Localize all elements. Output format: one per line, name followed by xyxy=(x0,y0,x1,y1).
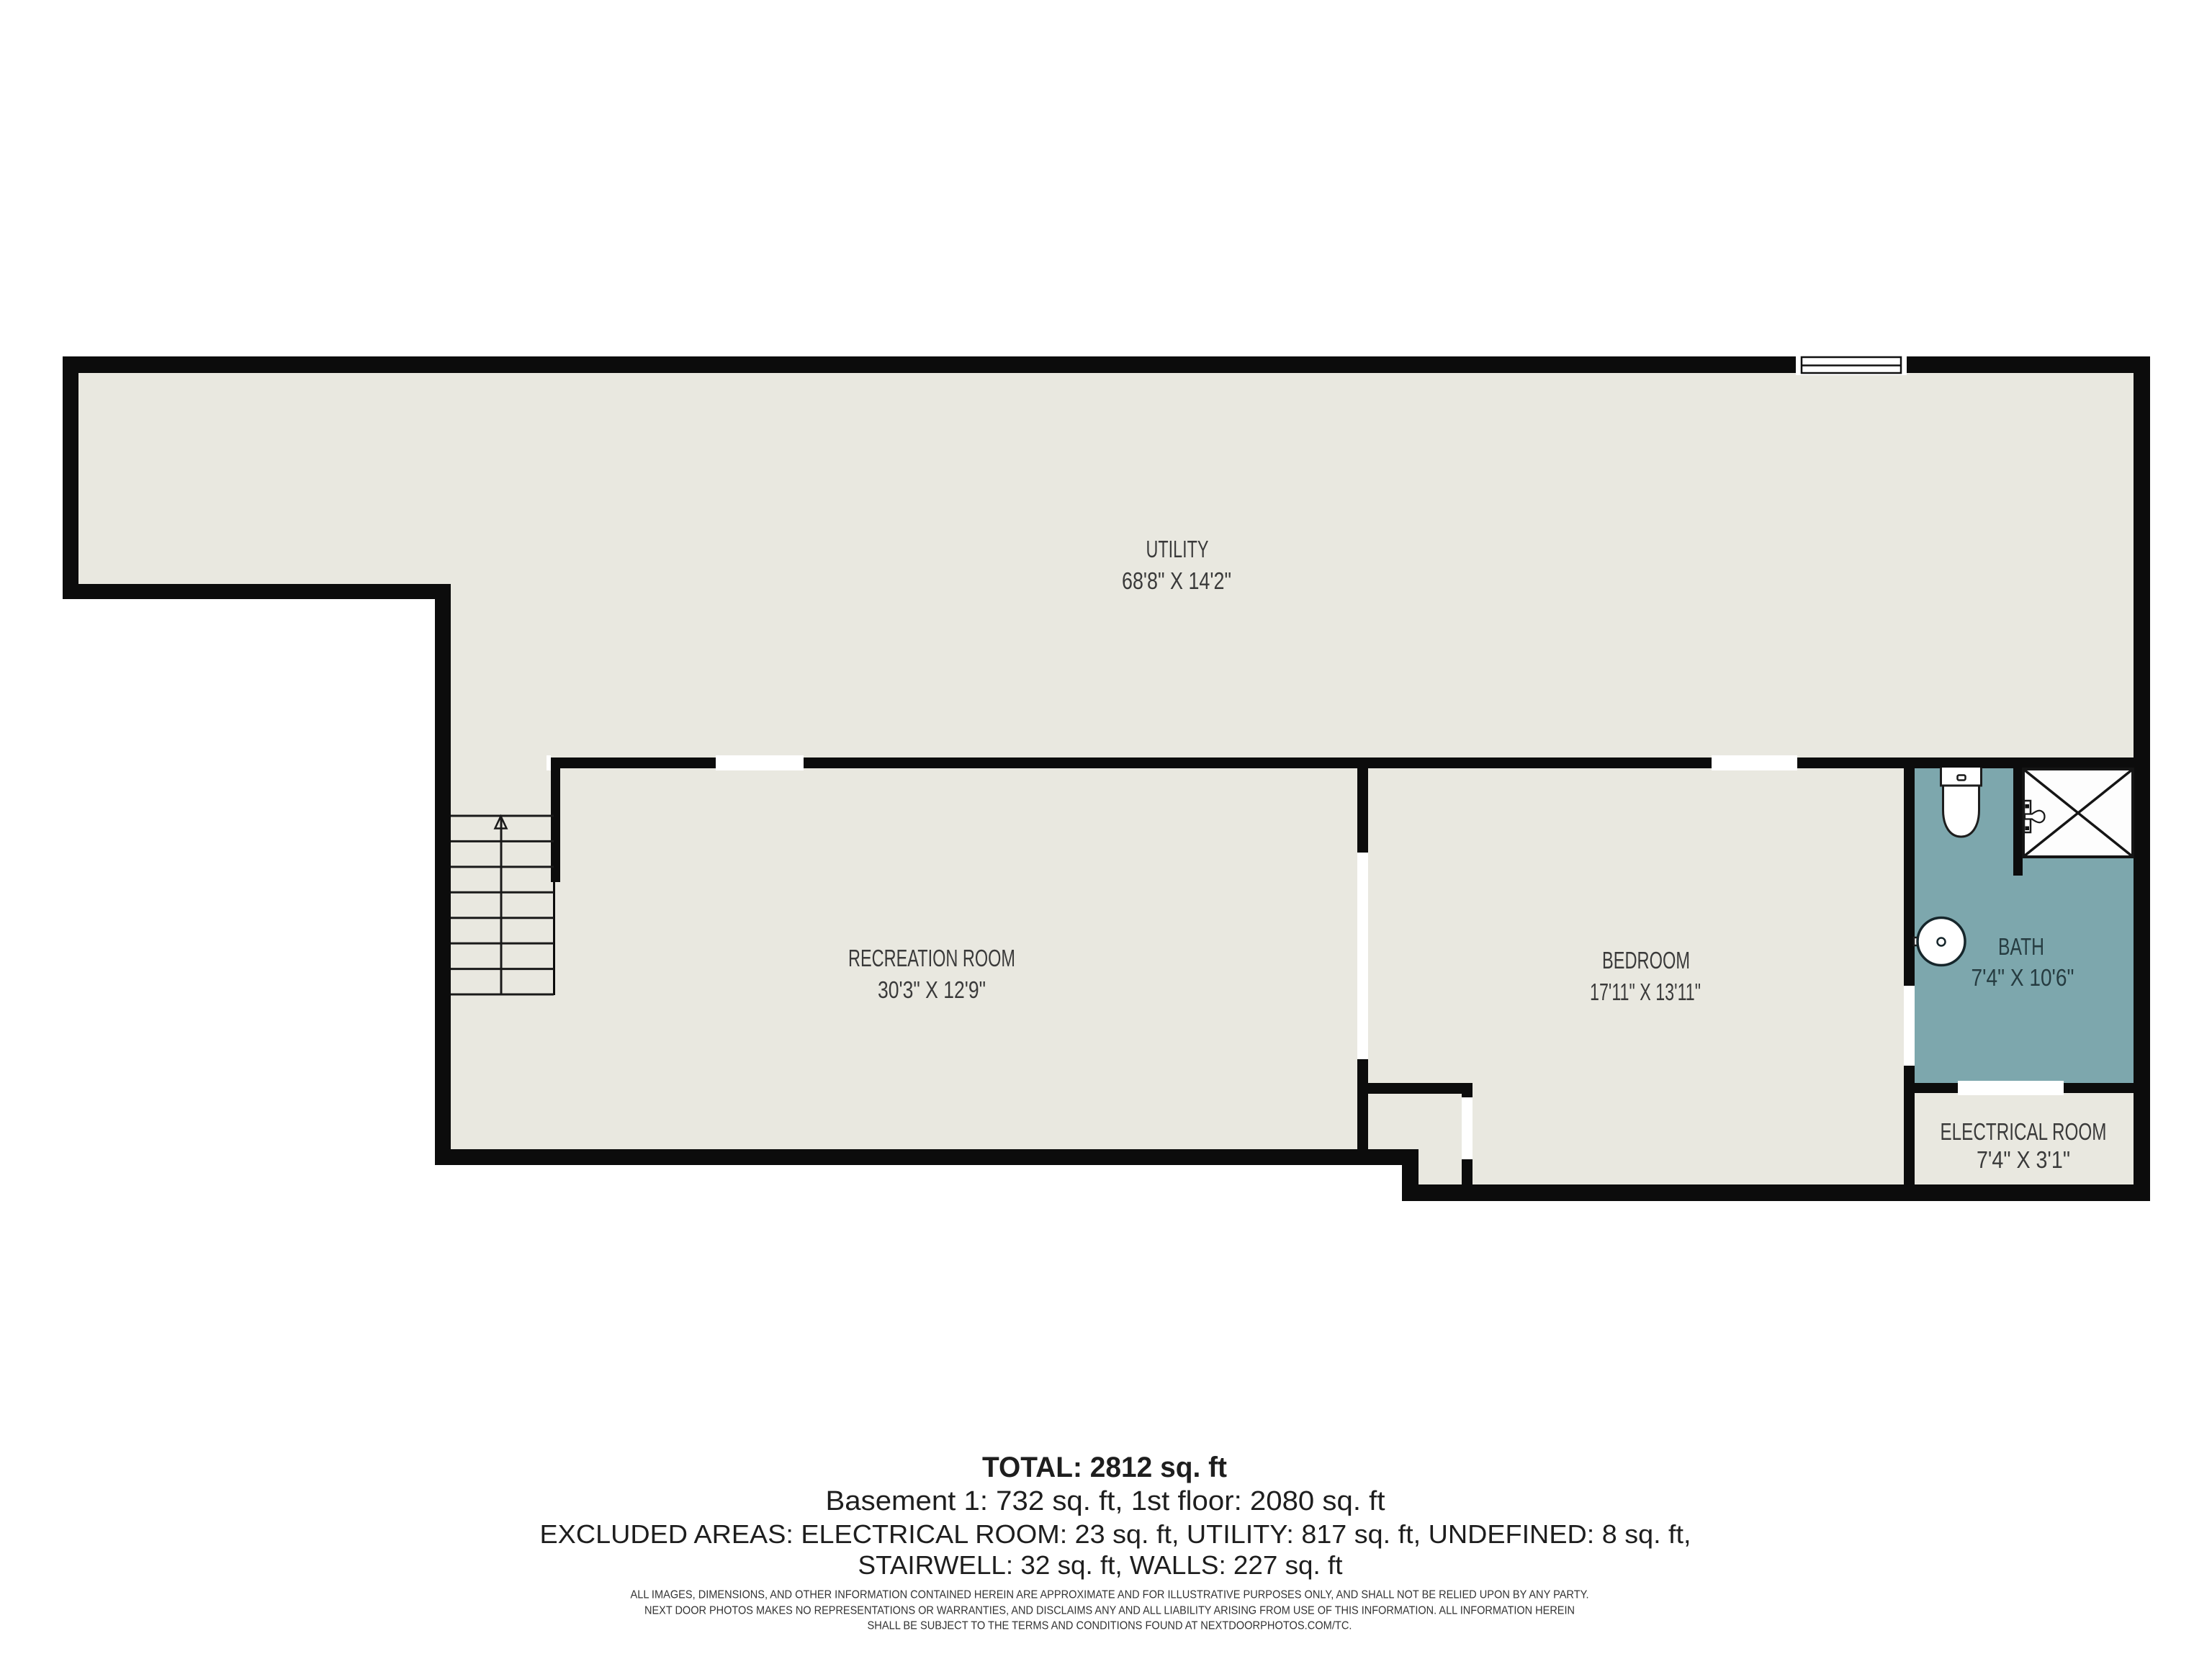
svg-text:ALL IMAGES, DIMENSIONS, AND OT: ALL IMAGES, DIMENSIONS, AND OTHER INFORM… xyxy=(631,1589,1589,1601)
svg-text:EXCLUDED AREAS: ELECTRICAL ROO: EXCLUDED AREAS: ELECTRICAL ROOM: 23 sq. … xyxy=(540,1519,1691,1549)
svg-text:ELECTRICAL ROOM: ELECTRICAL ROOM xyxy=(1941,1118,2107,1145)
svg-text:STAIRWELL: 32 sq. ft, WALLS: 2: STAIRWELL: 32 sq. ft, WALLS: 227 sq. ft xyxy=(858,1550,1343,1580)
svg-text:RECREATION ROOM: RECREATION ROOM xyxy=(848,945,1015,971)
svg-text:NEXT DOOR PHOTOS MAKES NO REPR: NEXT DOOR PHOTOS MAKES NO REPRESENTATION… xyxy=(644,1605,1575,1617)
svg-text:68'8" X 14'2": 68'8" X 14'2" xyxy=(1122,567,1231,594)
svg-text:BEDROOM: BEDROOM xyxy=(1602,947,1690,974)
svg-text:17'11" X 13'11": 17'11" X 13'11" xyxy=(1590,979,1701,1005)
svg-text:SHALL BE SUBJECT TO THE TERMS: SHALL BE SUBJECT TO THE TERMS AND CONDIT… xyxy=(868,1620,1352,1632)
svg-text:7'4" X 10'6": 7'4" X 10'6" xyxy=(1972,964,2074,991)
svg-text:TOTAL: 2812 sq. ft: TOTAL: 2812 sq. ft xyxy=(982,1452,1227,1483)
svg-text:UTILITY: UTILITY xyxy=(1146,536,1209,562)
svg-text:7'4" X 3'1": 7'4" X 3'1" xyxy=(1977,1146,2070,1173)
svg-text:Basement 1: 732 sq. ft, 1st fl: Basement 1: 732 sq. ft, 1st floor: 2080 … xyxy=(826,1486,1385,1516)
svg-text:BATH: BATH xyxy=(1998,933,2044,960)
svg-text:30'3" X 12'9": 30'3" X 12'9" xyxy=(878,976,986,1003)
